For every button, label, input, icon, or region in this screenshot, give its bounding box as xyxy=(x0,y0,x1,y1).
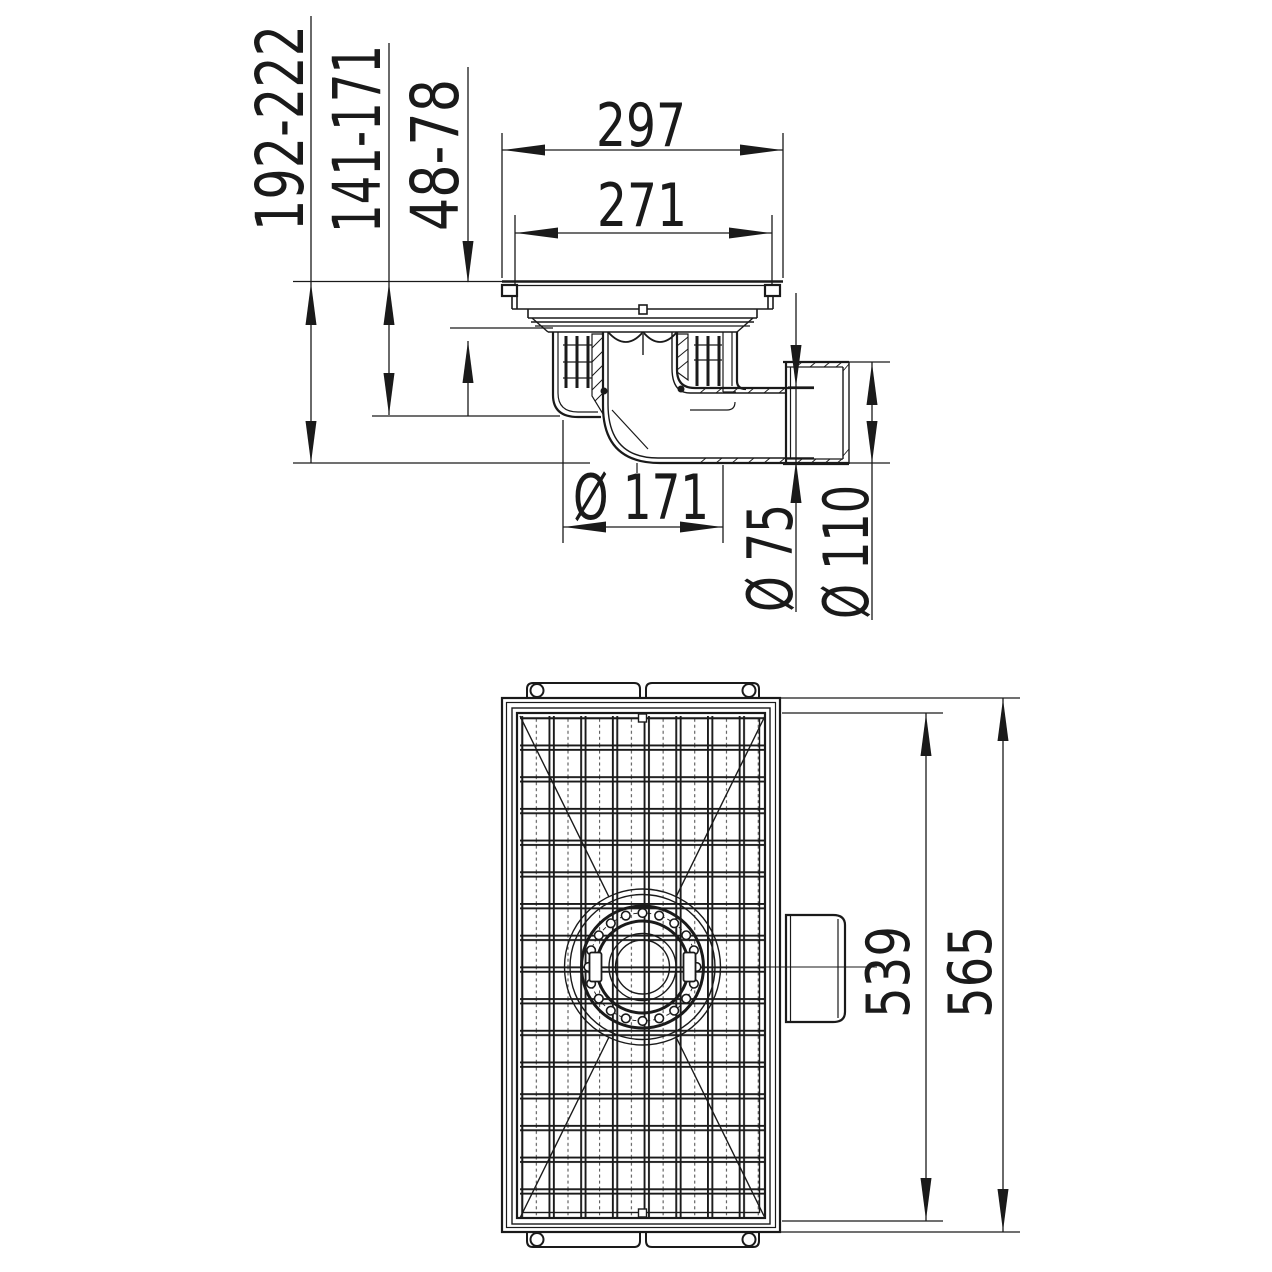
outlet-socket-section xyxy=(783,362,849,464)
dim-label-outlet-pipe-diameter: Ø 75 xyxy=(734,504,807,612)
dim-label-plan-length-outer: 565 xyxy=(936,926,1006,1018)
dim-label-top-width-outer: 297 xyxy=(596,91,686,161)
drain-technical-drawing: 192-222 141-171 48-78 297 271 Ø 171 Ø 75… xyxy=(0,0,1272,1272)
technical-drawing-page: 192-222 141-171 48-78 297 271 Ø 171 Ø 75… xyxy=(0,0,1272,1272)
dim-label-socket-diameter: Ø 110 xyxy=(810,485,883,619)
grate xyxy=(517,713,765,1218)
clamp-bolt-left xyxy=(563,336,608,395)
dim-label-body-diameter: Ø 171 xyxy=(573,461,709,534)
funnel-elbow-outlet xyxy=(603,332,849,473)
dim-label-height-upper: 48-78 xyxy=(397,79,474,231)
dim-label-height-total: 192-222 xyxy=(242,25,319,231)
dim-label-plan-length-inner: 539 xyxy=(854,926,924,1018)
hatch-wedge-left xyxy=(592,334,603,414)
hatch-wedge-right xyxy=(677,334,688,380)
dim-label-height-to-outlet: 141-171 xyxy=(319,45,396,233)
dim-label-top-width-inner: 271 xyxy=(597,171,687,241)
upper-frame-section xyxy=(502,282,783,333)
